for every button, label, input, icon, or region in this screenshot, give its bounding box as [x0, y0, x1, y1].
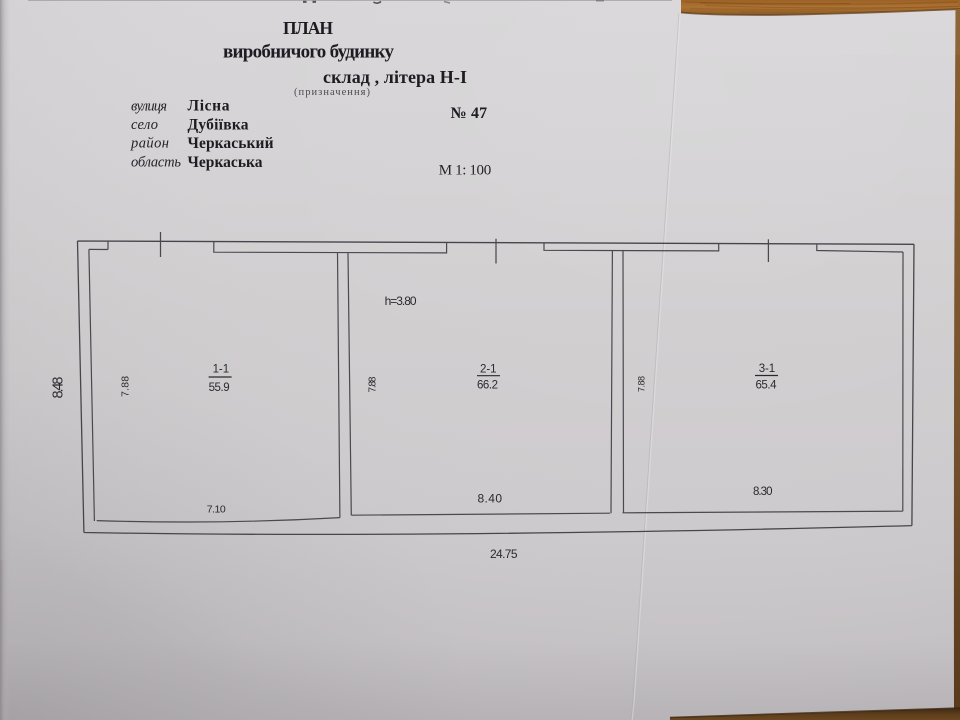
svg-text:66.2: 66.2: [477, 380, 498, 392]
svg-text:24.75: 24.75: [490, 547, 518, 561]
svg-text:виробничого будинку: виробничого будинку: [223, 42, 395, 63]
svg-text:Дубіївка: Дубіївка: [188, 117, 249, 134]
svg-text:7.88: 7.88: [368, 376, 379, 392]
svg-text:М 1: 100: М 1: 100: [439, 163, 492, 179]
svg-text:склад , літера Н-І: склад , літера Н-І: [323, 67, 467, 87]
svg-text:8.40: 8.40: [478, 492, 503, 506]
svg-text:1-1: 1-1: [213, 364, 230, 376]
svg-text:55.9: 55.9: [209, 382, 230, 394]
svg-text:7.88: 7.88: [637, 376, 647, 392]
svg-text:Черкаська: Черкаська: [188, 154, 263, 171]
svg-text:село: село: [131, 117, 158, 133]
svg-text:8.48: 8.48: [51, 377, 67, 399]
svg-text:7.10: 7.10: [207, 504, 226, 516]
svg-text:Лісна: Лісна: [188, 98, 230, 115]
svg-text:вулиця: вулиця: [131, 99, 167, 115]
svg-text:область: область: [131, 155, 181, 171]
svg-text:Черкаський: Черкаський: [188, 135, 274, 152]
svg-text:(призначення): (призначення): [294, 87, 371, 98]
svg-text:2-1: 2-1: [480, 364, 497, 376]
svg-text:район: район: [130, 136, 169, 152]
svg-text:65.4: 65.4: [756, 379, 778, 391]
svg-text:3-1: 3-1: [759, 363, 776, 375]
svg-text:h=3.80: h=3.80: [385, 294, 417, 308]
svg-text:№ 47: № 47: [451, 105, 488, 122]
svg-text:7.88: 7.88: [120, 376, 132, 397]
svg-text:8.30: 8.30: [753, 486, 773, 498]
svg-text:ПЛАН: ПЛАН: [283, 18, 333, 38]
